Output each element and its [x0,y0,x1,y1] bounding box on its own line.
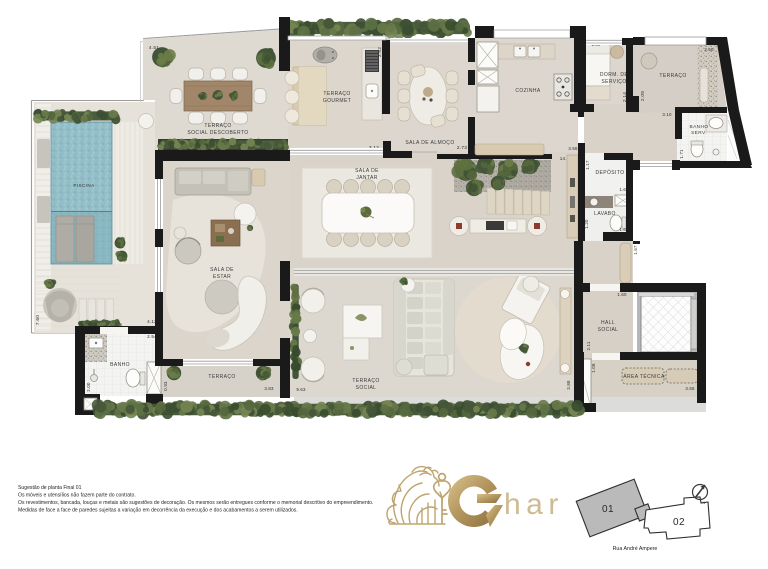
svg-text:GOURMET: GOURMET [323,98,351,104]
svg-text:0.93: 0.93 [163,381,168,391]
svg-text:2.00: 2.00 [86,382,91,392]
svg-text:2.11: 2.11 [586,341,591,350]
svg-text:9.63: 9.63 [296,387,306,392]
svg-text:2.73: 2.73 [457,145,467,151]
svg-text:01: 01 [602,504,614,515]
svg-text:BANHO: BANHO [110,362,130,368]
svg-text:TERRAÇO: TERRAÇO [323,91,350,97]
svg-text:2.09: 2.09 [640,91,646,101]
svg-text:1.17: 1.17 [585,160,590,170]
svg-text:DORM. DE: DORM. DE [600,72,628,78]
svg-text:JANTAR: JANTAR [356,175,377,181]
svg-text:3.55: 3.55 [685,386,695,391]
svg-text:SERV.: SERV. [691,130,707,136]
svg-text:SOCIAL: SOCIAL [356,385,377,391]
svg-text:PISCINA: PISCINA [73,183,95,188]
svg-text:3.88: 3.88 [566,380,571,390]
svg-text:3.83: 3.83 [264,386,274,391]
svg-text:SALA DE: SALA DE [210,267,234,273]
svg-text:LAVABO: LAVABO [594,211,616,217]
svg-text:HALL: HALL [601,320,615,326]
svg-text:Os revestimentos, bancada, lou: Os revestimentos, bancada, louças e meta… [18,500,373,506]
svg-text:4.51: 4.51 [149,45,159,51]
svg-text:har: har [504,488,564,521]
svg-text:Sugestão de planta Final 01: Sugestão de planta Final 01 [18,485,82,491]
svg-text:ESTAR: ESTAR [213,274,231,280]
svg-text:3.10: 3.10 [662,112,672,117]
svg-text:SERVIÇO: SERVIÇO [601,79,626,85]
svg-text:COZINHA: COZINHA [515,88,541,94]
svg-text:N: N [703,501,706,505]
svg-text:SALA DE ALMOÇO: SALA DE ALMOÇO [405,140,454,146]
svg-text:TERRAÇO: TERRAÇO [204,123,231,129]
svg-text:TERRAÇO: TERRAÇO [208,374,235,380]
svg-text:SOCIAL: SOCIAL [598,327,619,333]
svg-text:ÁREA TÉCNICA: ÁREA TÉCNICA [623,373,665,380]
svg-text:02: 02 [673,517,685,528]
svg-text:TERRAÇO: TERRAÇO [352,378,379,384]
svg-text:DEPÓSITO: DEPÓSITO [596,169,625,176]
svg-text:7.60: 7.60 [35,315,41,325]
svg-text:Medidas de face a face de pare: Medidas de face a face de paredes sujeit… [18,508,298,514]
svg-text:1.08: 1.08 [591,363,596,373]
svg-text:TERRAÇO: TERRAÇO [659,73,686,79]
svg-text:SOCIAL DESCOBERTO: SOCIAL DESCOBERTO [187,130,248,136]
svg-text:Rua André Ampere: Rua André Ampere [613,546,658,552]
svg-text:1.60: 1.60 [617,292,627,297]
svg-text:BANHO: BANHO [689,124,708,130]
svg-text:1.71: 1.71 [679,149,684,159]
svg-text:Os móveis e utensílios não faz: Os móveis e utensílios não fazem parte d… [18,493,136,499]
svg-text:SALA DE: SALA DE [355,168,379,174]
svg-text:3.56: 3.56 [568,146,578,151]
svg-text:1.67: 1.67 [633,245,638,255]
svg-text:2.60: 2.60 [704,47,714,52]
